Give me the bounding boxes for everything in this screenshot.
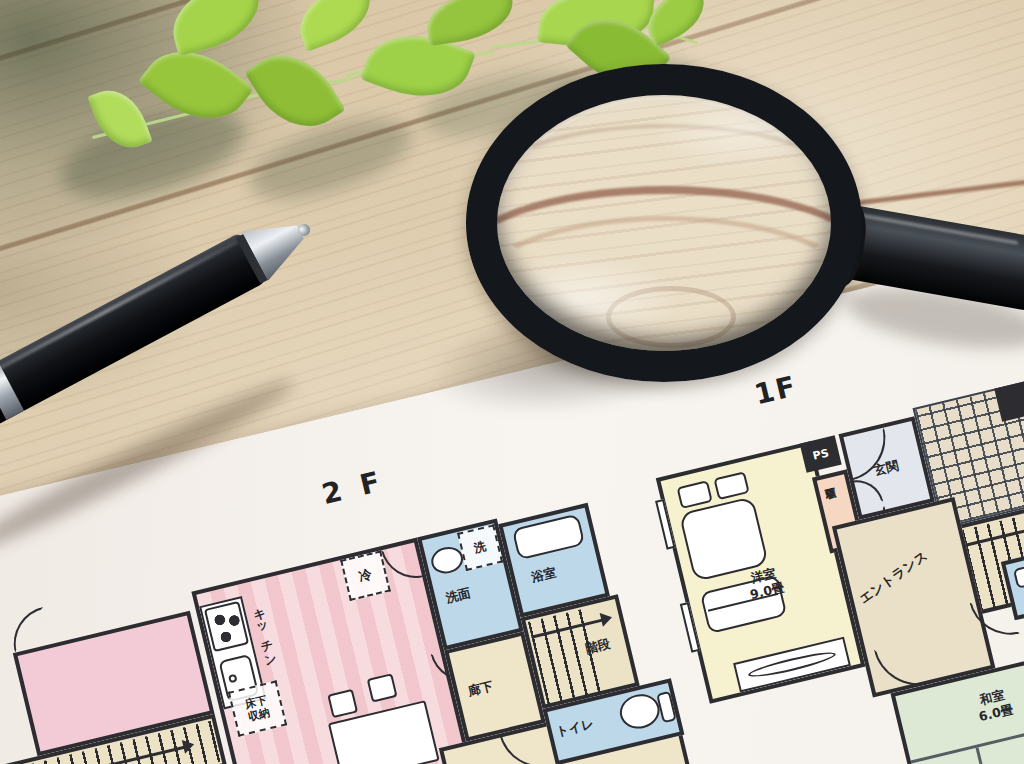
ps-label: PS (811, 446, 830, 462)
magnifying-glass (466, 64, 862, 382)
fridge-label: 冷 (357, 565, 374, 586)
photo-scene: 2 F 冷 キッチン 床下 収納 洗 (0, 0, 1024, 764)
stair-arrow-head (600, 609, 621, 627)
washer-label: 洗 (472, 538, 488, 557)
ps-box: PS (800, 435, 842, 473)
floor2-title: 2 F (319, 464, 388, 511)
magnifier-rim (466, 64, 862, 382)
